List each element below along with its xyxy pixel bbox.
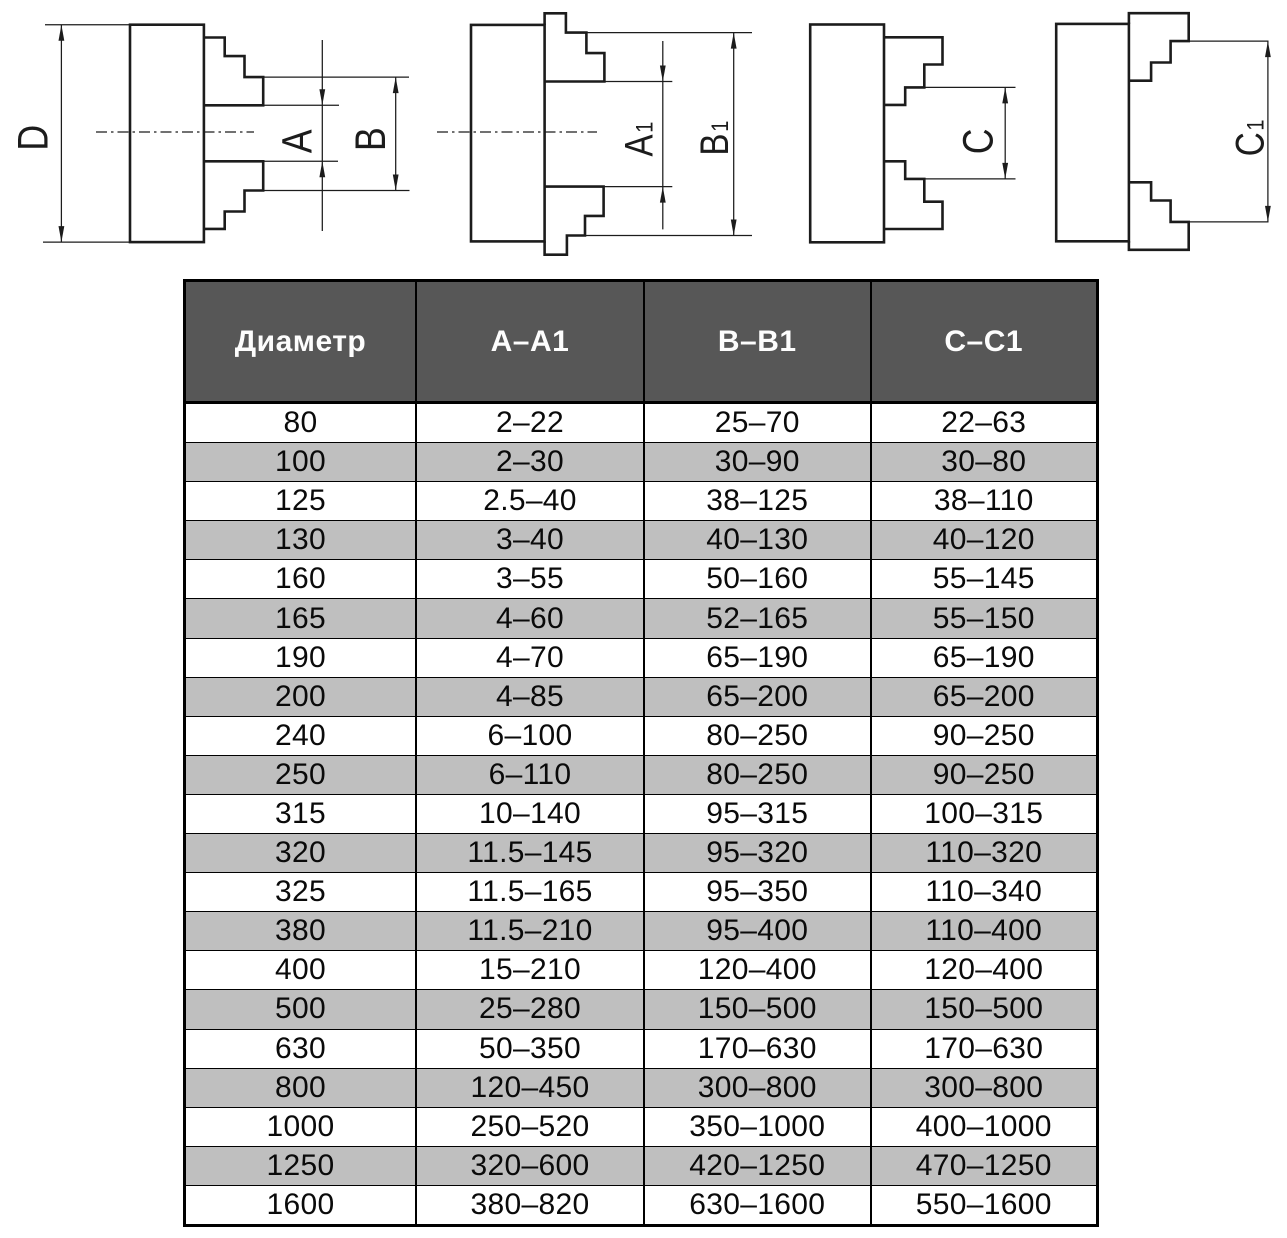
svg-text:С: С	[954, 128, 1002, 154]
svg-text:А1: А1	[617, 122, 662, 157]
svg-text:В: В	[347, 127, 395, 151]
svg-text:С1: С1	[1227, 119, 1272, 156]
svg-text:В1: В1	[692, 121, 737, 156]
svg-text:D: D	[10, 125, 58, 151]
svg-text:А: А	[273, 129, 321, 153]
